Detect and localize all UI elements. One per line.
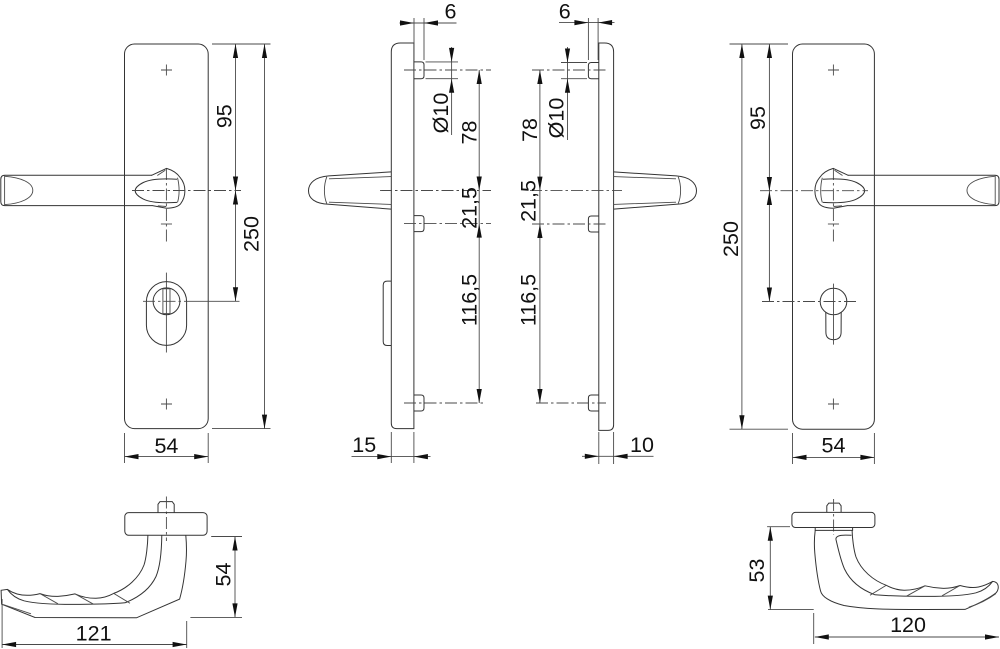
svg-text:21,5: 21,5 <box>457 187 481 229</box>
svg-text:54: 54 <box>212 563 236 587</box>
svg-text:Ø10: Ø10 <box>429 93 453 134</box>
svg-text:116,5: 116,5 <box>516 274 540 326</box>
svg-text:121: 121 <box>76 621 112 645</box>
svg-text:Ø10: Ø10 <box>544 98 568 139</box>
svg-text:53: 53 <box>745 559 769 583</box>
svg-text:95: 95 <box>213 104 237 128</box>
svg-text:120: 120 <box>890 613 926 637</box>
svg-text:78: 78 <box>457 121 481 145</box>
svg-text:15: 15 <box>352 433 376 457</box>
svg-text:10: 10 <box>630 433 654 457</box>
svg-text:54: 54 <box>822 434 846 458</box>
svg-text:21,5: 21,5 <box>516 180 540 222</box>
svg-text:250: 250 <box>240 216 264 252</box>
svg-text:54: 54 <box>154 434 178 458</box>
svg-text:250: 250 <box>719 221 743 257</box>
svg-text:6: 6 <box>559 0 571 23</box>
svg-text:78: 78 <box>518 118 542 142</box>
svg-text:116,5: 116,5 <box>457 274 481 326</box>
svg-text:6: 6 <box>445 0 457 23</box>
svg-text:95: 95 <box>746 106 770 130</box>
